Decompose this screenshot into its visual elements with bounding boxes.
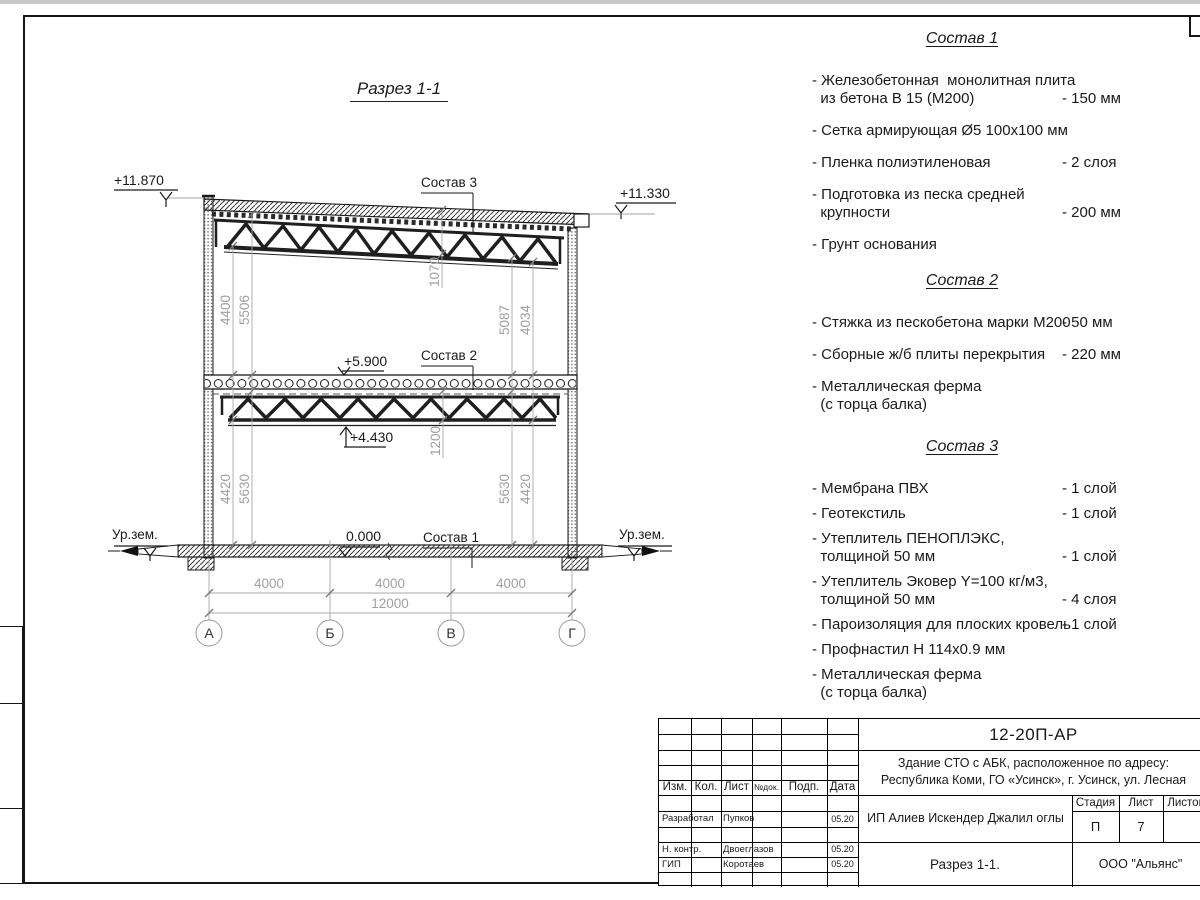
item-value: - 4 слоя [1062, 591, 1117, 609]
composition-item: - Подготовка из песка средней крупности-… [812, 186, 1142, 222]
item-text: - Сетка армирующая Ø5 100х100 мм [812, 122, 1142, 140]
row-date: 05.20 [827, 842, 858, 857]
composition-item: - Геотекстиль- 1 слой [812, 505, 1142, 523]
ground-level-label-left: Ур.зем. [112, 527, 158, 542]
item-text: - Профнастил Н 114х0.9 мм [812, 641, 1142, 659]
row-role: Н. контр. [662, 842, 722, 857]
elevation-label-ground: 0.000 [346, 528, 381, 544]
item-value: - 200 мм [1062, 204, 1121, 222]
composition-block-1: Состав 1- Железобетонная монолитная плит… [812, 30, 1142, 268]
margin-cell-1 [0, 626, 23, 704]
sheet-label: Лист [1119, 795, 1163, 811]
elevation-label-truss: +4.430 [350, 429, 393, 445]
col-izm: Изм. [659, 780, 691, 795]
composition-item: - Стяжка из пескобетона марки М200- 50 м… [812, 314, 1142, 332]
composition-item: - Пленка полиэтиленовая- 2 слоя [812, 154, 1142, 172]
composition-item: - Сборные ж/б плиты перекрытия- 220 мм [812, 346, 1142, 364]
composition-title: Состав 2 [812, 272, 1112, 290]
col-ndok: №док. [752, 780, 781, 795]
composition-item: - Металлическая ферма (с торца балка) [812, 666, 1142, 702]
item-value: - 220 мм [1062, 346, 1121, 364]
composition-item: - Грунт основания [812, 236, 1142, 254]
col-kol: Кол. [691, 780, 721, 795]
window-top-edge [0, 0, 1200, 4]
col-data: Дата [827, 780, 858, 795]
composition-item: - Пароизоляция для плоских кровель- 1 сл… [812, 616, 1142, 634]
sheets-label: Листов [1163, 795, 1200, 811]
composition-block-3: Состав 3- Мембрана ПВХ- 1 слой- Геотекст… [812, 438, 1142, 709]
composition-item: - Металлическая ферма (с торца балка) [812, 378, 1142, 414]
col-podp: Подп. [781, 780, 827, 795]
composition-item: - Утеплитель ПЕНОПЛЭКС, толщиной 50 мм- … [812, 530, 1142, 566]
composition-title: Состав 3 [812, 438, 1112, 456]
sheets-total [1163, 811, 1200, 842]
item-value: - 50 мм [1062, 314, 1113, 332]
row-name: Пупков [723, 811, 781, 827]
frame-corner-box [1189, 15, 1200, 37]
item-text: - Грунт основания [812, 236, 1142, 254]
item-value: - 1 слой [1062, 616, 1117, 634]
row-role: Разработал [662, 811, 722, 827]
composition-item: - Профнастил Н 114х0.9 мм [812, 641, 1142, 659]
row-name: Двоеглазов [723, 842, 781, 857]
item-text: - Металлическая ферма (с торца балка) [812, 666, 1142, 702]
stage-label: Стадия [1072, 795, 1119, 811]
callout-sostav-1: Состав 1 [423, 530, 479, 545]
project-line-1: Здание СТО с АБК, расположенное по адрес… [858, 755, 1200, 772]
composition-item: - Утеплитель Эковер Y=100 кг/м3, толщино… [812, 573, 1142, 609]
margin-cell-2 [0, 703, 23, 809]
row-role: ГИП [662, 857, 722, 872]
composition-item: - Мембрана ПВХ- 1 слой [812, 480, 1142, 498]
sheet-number: 7 [1119, 811, 1163, 842]
elevation-label-floor2: +5.900 [344, 353, 387, 369]
callout-sostav-3: Состав 3 [421, 175, 477, 190]
row-date: 05.20 [827, 857, 858, 872]
margin-cell-3 [0, 808, 23, 884]
composition-title: Состав 1 [812, 30, 1112, 48]
drawing-title: Разрез 1-1 [350, 79, 448, 102]
elevation-label-roof-right: +11.330 [620, 185, 670, 201]
item-value: - 150 мм [1062, 90, 1121, 108]
item-text: - Металлическая ферма (с торца балка) [812, 378, 1142, 414]
row-name: Коротаев [723, 857, 781, 872]
composition-item: - Сетка армирующая Ø5 100х100 мм [812, 122, 1142, 140]
row-date: 05.20 [827, 811, 858, 827]
project-line-2: Республика Коми, ГО «Усинск», г. Усинск,… [858, 772, 1200, 789]
composition-block-2: Состав 2- Стяжка из пескобетона марки М2… [812, 272, 1142, 428]
document-code: 12-20П-АР [858, 719, 1200, 750]
item-value: - 2 слоя [1062, 154, 1117, 172]
item-value: - 1 слой [1062, 548, 1117, 566]
client-name: ИП Алиев Искендер Джалил оглы [861, 795, 1070, 842]
elevation-label-roof-left: +11.870 [114, 172, 164, 188]
stage-value: П [1072, 811, 1119, 842]
item-value: - 1 слой [1062, 480, 1117, 498]
ground-level-label-right: Ур.зем. [619, 527, 665, 542]
item-value: - 1 слой [1062, 505, 1117, 523]
col-list: Лист [721, 780, 752, 795]
title-block: Изм. Кол. Лист №док. Подп. Дата 12-20П-А… [658, 718, 1200, 886]
sheet-title: Разрез 1-1. [858, 842, 1072, 887]
callout-sostav-2: Состав 2 [421, 348, 477, 363]
company-name: ООО "Альянс" [1072, 842, 1200, 887]
composition-item: - Железобетонная монолитная плита из бет… [812, 72, 1142, 108]
